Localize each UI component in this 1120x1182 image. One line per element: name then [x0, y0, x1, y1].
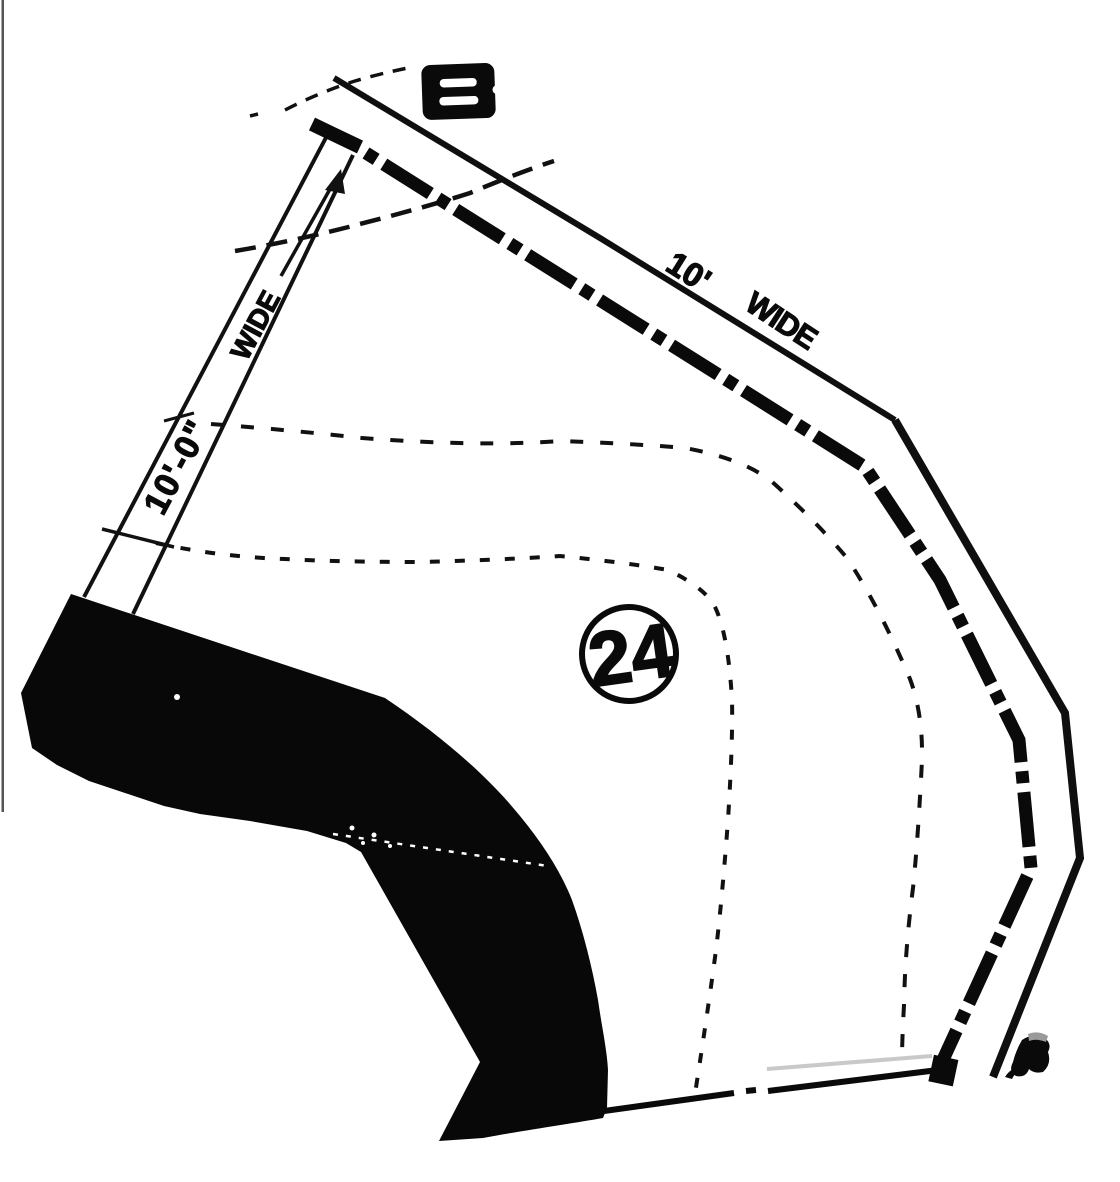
svg-text:24: 24 — [583, 608, 679, 704]
